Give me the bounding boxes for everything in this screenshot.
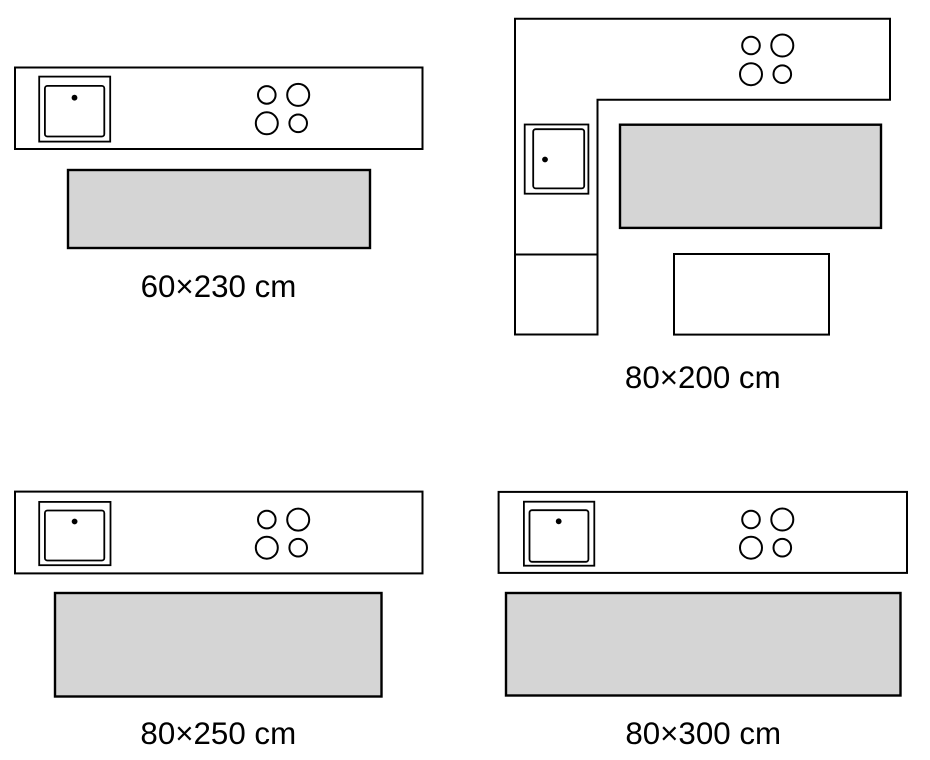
svg-text:80×200 cm: 80×200 cm [625,360,781,395]
svg-text:80×250 cm: 80×250 cm [140,716,296,751]
svg-text:80×300 cm: 80×300 cm [625,716,781,751]
svg-text:60×230 cm: 60×230 cm [141,269,297,304]
